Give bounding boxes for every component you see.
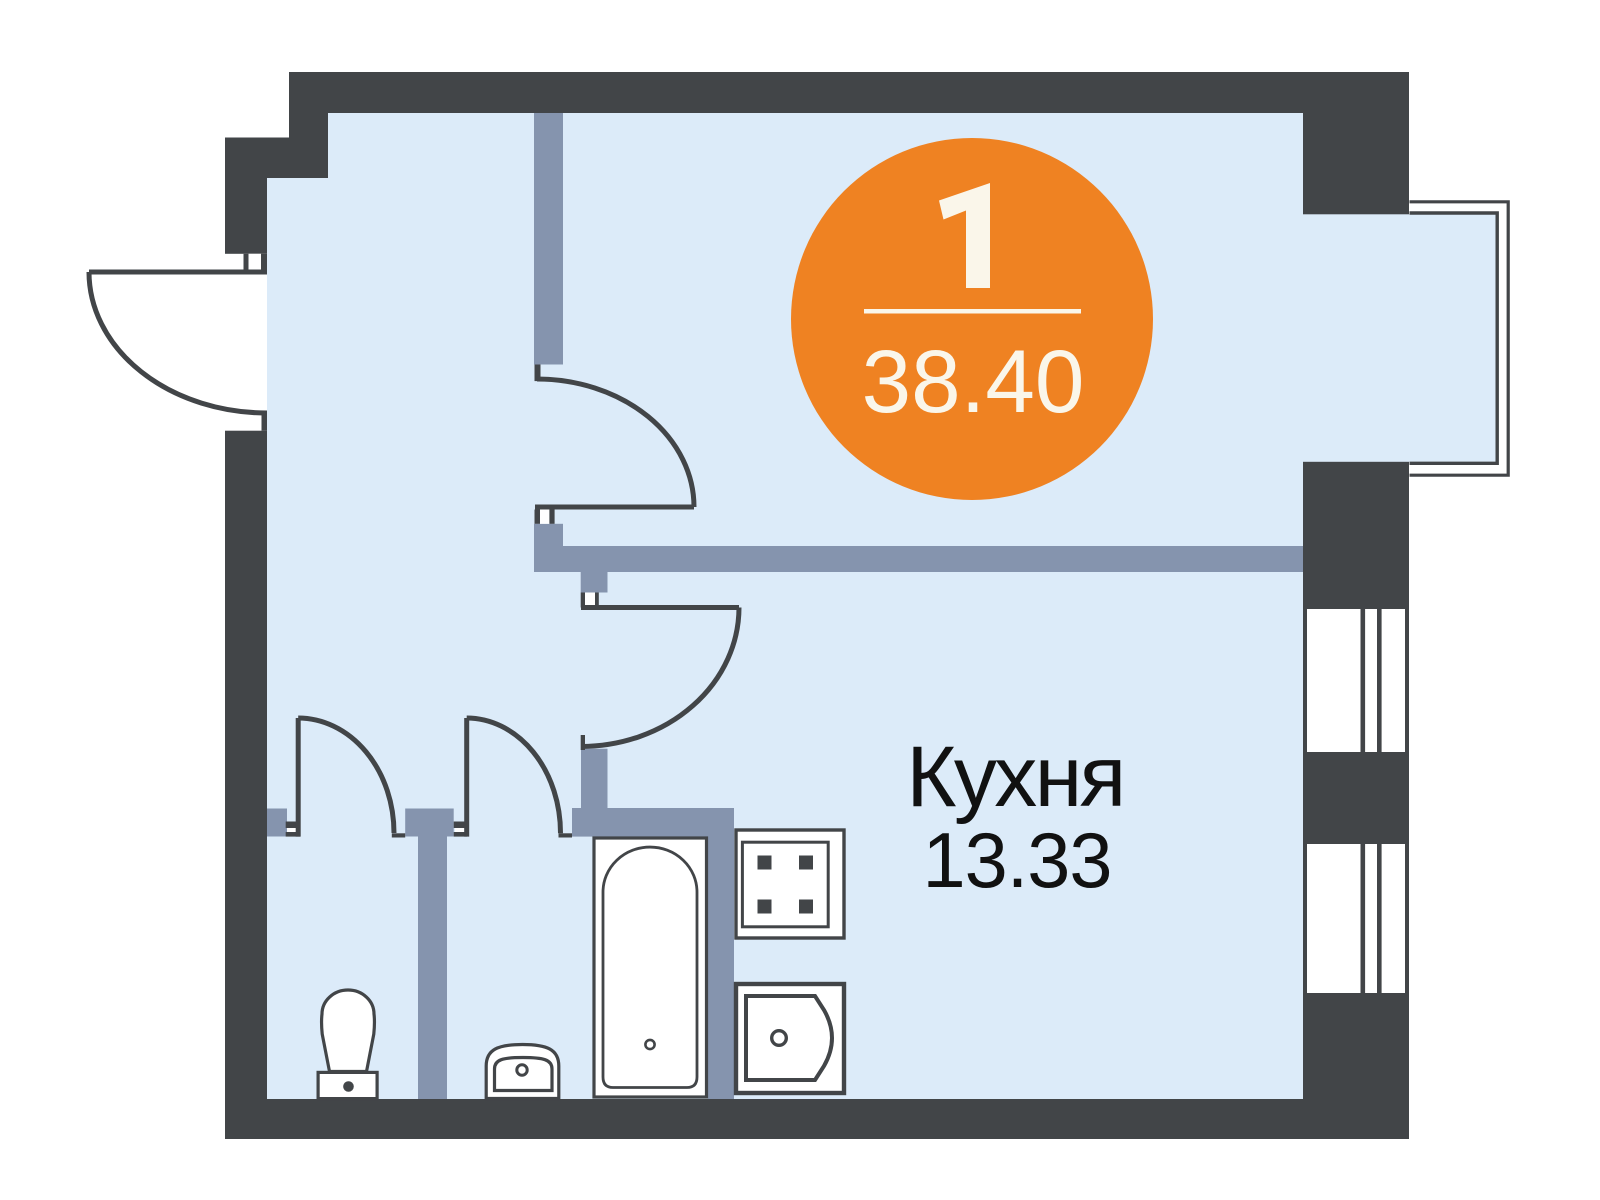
- svg-text:38.40: 38.40: [862, 331, 1085, 431]
- svg-text:Кухня: Кухня: [906, 729, 1123, 825]
- svg-text:13.33: 13.33: [923, 818, 1112, 904]
